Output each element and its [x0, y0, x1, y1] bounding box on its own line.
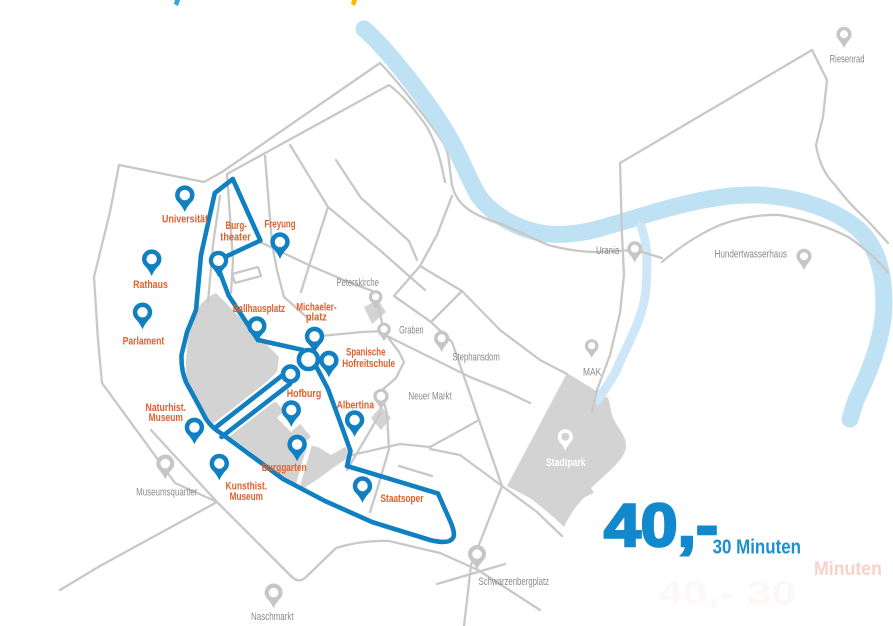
- svg-text:Staatsoper: Staatsoper: [381, 493, 425, 505]
- svg-text:Peterskirche: Peterskirche: [336, 277, 379, 289]
- svg-text:Stadtpark: Stadtpark: [546, 457, 586, 469]
- svg-text:Spanische: Spanische: [346, 347, 385, 359]
- svg-text:Parlament: Parlament: [123, 335, 165, 347]
- svg-text:Stephansdom: Stephansdom: [452, 352, 499, 364]
- svg-text:Graben: Graben: [399, 325, 424, 337]
- svg-text:Universität: Universität: [162, 213, 208, 225]
- svg-text:Urania: Urania: [596, 245, 620, 257]
- svg-text:Museumsquartier: Museumsquartier: [136, 487, 197, 499]
- svg-text:theater: theater: [220, 232, 251, 244]
- svg-text:Museum: Museum: [149, 412, 184, 424]
- svg-text:Hofburg: Hofburg: [287, 388, 322, 400]
- svg-text:Albertina: Albertina: [337, 399, 375, 411]
- svg-text:Hofreitschule: Hofreitschule: [342, 358, 395, 370]
- svg-text:Hundertwasserhaus: Hundertwasserhaus: [714, 249, 787, 261]
- svg-text:Museum: Museum: [230, 491, 264, 503]
- svg-text:40,- 30: 40,- 30: [658, 575, 796, 611]
- svg-text:platz: platz: [306, 311, 328, 323]
- svg-text:Riesenrad: Riesenrad: [830, 54, 865, 66]
- svg-text:Freyung: Freyung: [264, 219, 295, 231]
- svg-text:30 Minuten: 30 Minuten: [713, 537, 801, 559]
- svg-text:Naschmarkt: Naschmarkt: [251, 611, 294, 623]
- svg-text:Rathaus: Rathaus: [133, 279, 168, 291]
- svg-text:MAK: MAK: [583, 367, 601, 379]
- svg-text:40,-: 40,-: [604, 492, 718, 559]
- svg-text:Burggarten: Burggarten: [262, 462, 307, 474]
- svg-text:Minuten: Minuten: [814, 559, 882, 580]
- svg-text:Ballhausplatz: Ballhausplatz: [233, 303, 286, 315]
- svg-text:Schwarzenbergplatz: Schwarzenbergplatz: [479, 576, 550, 588]
- svg-text:Neuer Markt: Neuer Markt: [409, 391, 453, 403]
- svg-text:Burg-: Burg-: [225, 220, 247, 232]
